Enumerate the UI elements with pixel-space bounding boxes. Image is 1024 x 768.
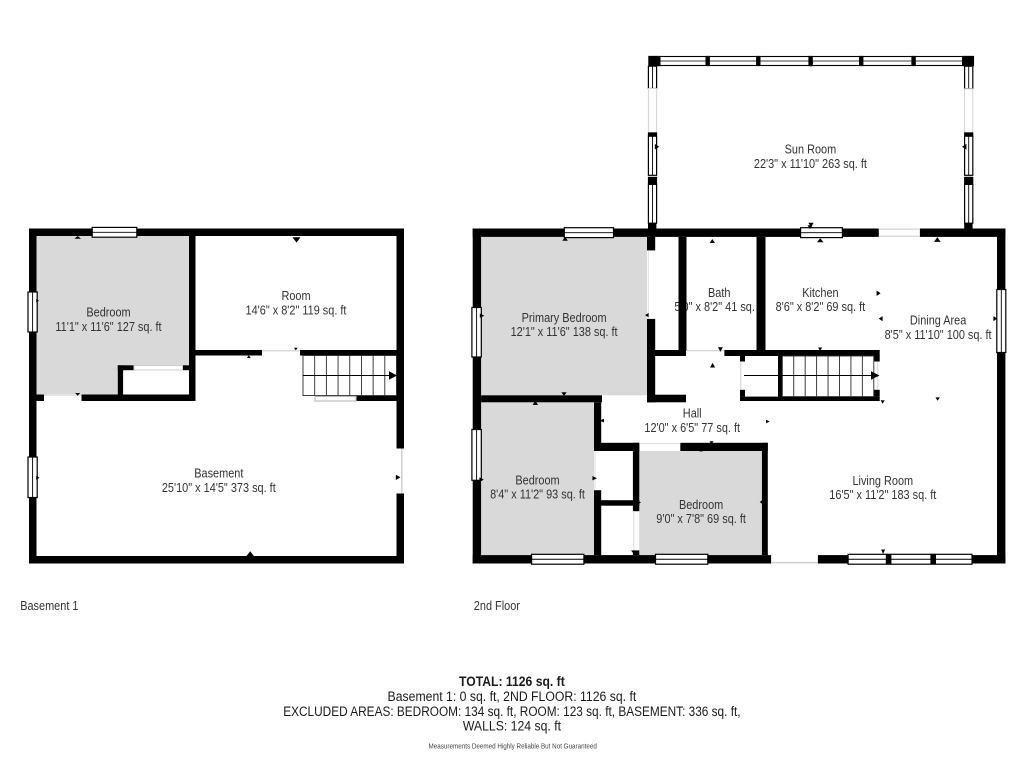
svg-text:8'4" x 11'2" 93 sq. ft: 8'4" x 11'2" 93 sq. ft	[490, 487, 585, 502]
svg-text:EXCLUDED AREAS: BEDROOM: 134 s: EXCLUDED AREAS: BEDROOM: 134 sq. ft, ROO…	[283, 703, 740, 719]
svg-text:WALLS: 124 sq. ft: WALLS: 124 sq. ft	[463, 718, 561, 734]
svg-text:11'1" x 11'6" 127 sq. ft: 11'1" x 11'6" 127 sq. ft	[55, 319, 162, 334]
svg-text:Primary Bedroom: Primary Bedroom	[522, 310, 607, 325]
svg-text:Bedroom: Bedroom	[515, 473, 559, 488]
svg-text:22'3" x 11'10" 263 sq. ft: 22'3" x 11'10" 263 sq. ft	[754, 156, 868, 171]
svg-text:16'5" x 11'2" 183 sq. ft: 16'5" x 11'2" 183 sq. ft	[829, 487, 937, 502]
svg-text:14'6" x 8'2" 119 sq. ft: 14'6" x 8'2" 119 sq. ft	[246, 302, 348, 317]
svg-text:Basement 1: 0 sq. ft, 2ND FLOO: Basement 1: 0 sq. ft, 2ND FLOOR: 1126 sq…	[388, 688, 637, 704]
svg-text:5'0" x 8'2" 41 sq. ft: 5'0" x 8'2" 41 sq. ft	[674, 299, 764, 314]
svg-text:8'5" x 11'10" 100 sq. ft: 8'5" x 11'10" 100 sq. ft	[885, 327, 993, 342]
svg-text:12'0" x 6'5" 77 sq. ft: 12'0" x 6'5" 77 sq. ft	[644, 420, 740, 435]
svg-text:12'1" x 11'6" 138 sq. ft: 12'1" x 11'6" 138 sq. ft	[511, 324, 619, 339]
svg-text:Living Room: Living Room	[852, 473, 913, 488]
svg-text:Room: Room	[281, 288, 310, 303]
svg-text:Basement: Basement	[194, 466, 244, 481]
svg-text:Basement 1: Basement 1	[20, 598, 79, 613]
svg-text:2nd Floor: 2nd Floor	[474, 598, 520, 613]
svg-text:Bedroom: Bedroom	[86, 305, 130, 320]
svg-text:Bath: Bath	[708, 285, 730, 300]
svg-text:Kitchen: Kitchen	[802, 285, 838, 300]
svg-text:Bedroom: Bedroom	[679, 497, 723, 512]
svg-text:9'0" x 7'8" 69 sq. ft: 9'0" x 7'8" 69 sq. ft	[656, 511, 746, 526]
svg-text:Hall: Hall	[683, 406, 702, 421]
svg-text:Dining Area: Dining Area	[910, 313, 967, 328]
svg-text:8'6" x 8'2" 69 sq. ft: 8'6" x 8'2" 69 sq. ft	[776, 299, 866, 314]
svg-text:25'10" x 14'5" 373 sq. ft: 25'10" x 14'5" 373 sq. ft	[162, 480, 276, 495]
svg-text:Measurements Deemed Highly Rel: Measurements Deemed Highly Reliable But …	[429, 743, 598, 750]
svg-text:Sun Room: Sun Room	[785, 142, 837, 157]
svg-text:TOTAL: 1126 sq. ft: TOTAL: 1126 sq. ft	[459, 673, 565, 689]
